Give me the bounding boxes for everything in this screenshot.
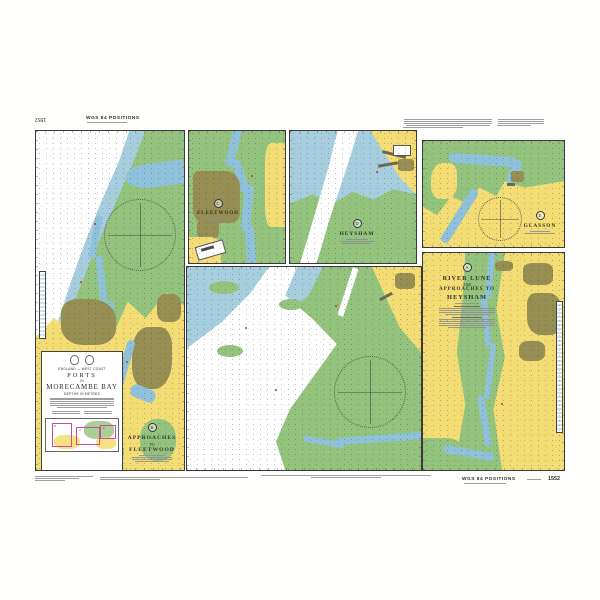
depths-note: DEPTHS IN METRES (42, 392, 122, 396)
panel-letter-b: B (148, 423, 157, 432)
panel-c-label: C FLEETWOOD (191, 191, 245, 222)
panel-b-name-1: APPROACHES (120, 435, 184, 442)
panel-letter-c: C (214, 199, 223, 208)
panel-d-name: HEYSHAM (330, 231, 384, 238)
chart-title-morecambe-bay: MORECAMBE BAY (42, 383, 122, 391)
sources-note (100, 476, 250, 481)
scale-note (256, 474, 436, 479)
dock-structure (507, 183, 515, 186)
panel-a-name-1: RIVER LUNE (427, 275, 507, 283)
index-letter: E (103, 426, 105, 430)
bank-patch (217, 345, 243, 357)
compass-rose (478, 197, 522, 241)
compass-rose (104, 199, 176, 271)
compass-rose (334, 356, 406, 428)
built-up-area (519, 341, 545, 361)
chart-title-block: ENGLAND — WEST COAST PORTS IN MORECAMBE … (41, 351, 123, 471)
panel-river-lune-title-strip: A RIVER LUNE AND APPROACHES TO HEYSHAM (422, 252, 565, 471)
panel-a-title: A RIVER LUNE AND APPROACHES TO HEYSHAM (427, 255, 507, 329)
built-up-area (523, 263, 553, 285)
built-up-area (157, 294, 181, 322)
chart-number-bottom-right: 1552 (548, 476, 560, 482)
built-up-area (395, 273, 415, 289)
panel-a-name-4: HEYSHAM (427, 294, 507, 302)
panel-heysham: D HEYSHAM (289, 130, 417, 264)
panel-fleetwood: C FLEETWOOD (188, 130, 286, 264)
panel-e-name: GLASSON (517, 223, 563, 230)
wgs-positions-bottom-label: WGS 84 POSITIONS (462, 477, 522, 482)
panel-approaches-to-fleetwood: ENGLAND — WEST COAST PORTS IN MORECAMBE … (35, 130, 185, 471)
panel-letter-e: E (536, 211, 545, 220)
chart-sheet: 1552 WGS 84 POSITIONS (0, 0, 600, 600)
panel-e-label: E GLASSON (517, 203, 563, 235)
title-notes (42, 398, 122, 416)
chart-note-block (403, 118, 493, 129)
chart-title-ports: PORTS (42, 372, 122, 379)
positions-note (427, 317, 507, 328)
panel-b-name-3: FLEETWOOD (120, 447, 184, 454)
fine-print-line (464, 483, 506, 484)
panel-b-label: B APPROACHES TO FLEETWOOD (120, 415, 184, 463)
wgs-positions-top-label: WGS 84 POSITIONS (86, 116, 146, 121)
bank-patch (279, 299, 303, 310)
harbour-basin (393, 145, 411, 156)
chart-note-block (497, 118, 545, 127)
publication-note (35, 475, 97, 482)
glasson-dock-buildings (511, 171, 524, 182)
scale-ladder (39, 271, 46, 339)
land-wedge (431, 163, 457, 199)
crest-icon (85, 355, 94, 365)
built-up-area (132, 327, 172, 389)
index-diagram: B A E (45, 418, 119, 452)
crest-icon (70, 355, 79, 365)
built-up-area-fleetwood (61, 299, 116, 345)
bank-patch (209, 281, 239, 294)
panel-glasson: E GLASSON (422, 140, 565, 248)
panel-river-lune-estuary (186, 266, 422, 471)
panel-letter-d: D (353, 219, 362, 228)
index-letter: A (79, 428, 81, 432)
panel-letter-a: A (463, 263, 472, 272)
copyright-mark (527, 478, 543, 481)
fine-print-line (87, 122, 127, 123)
panel-c-name: FLEETWOOD (191, 211, 245, 217)
panel-d-label: D HEYSHAM (330, 211, 384, 245)
port-buildings (398, 159, 414, 171)
region-label: ENGLAND — WEST COAST (42, 367, 122, 371)
index-letter: B (54, 424, 56, 428)
authorities-note (427, 306, 507, 315)
chart-number-top-left: 1552 (35, 116, 46, 122)
